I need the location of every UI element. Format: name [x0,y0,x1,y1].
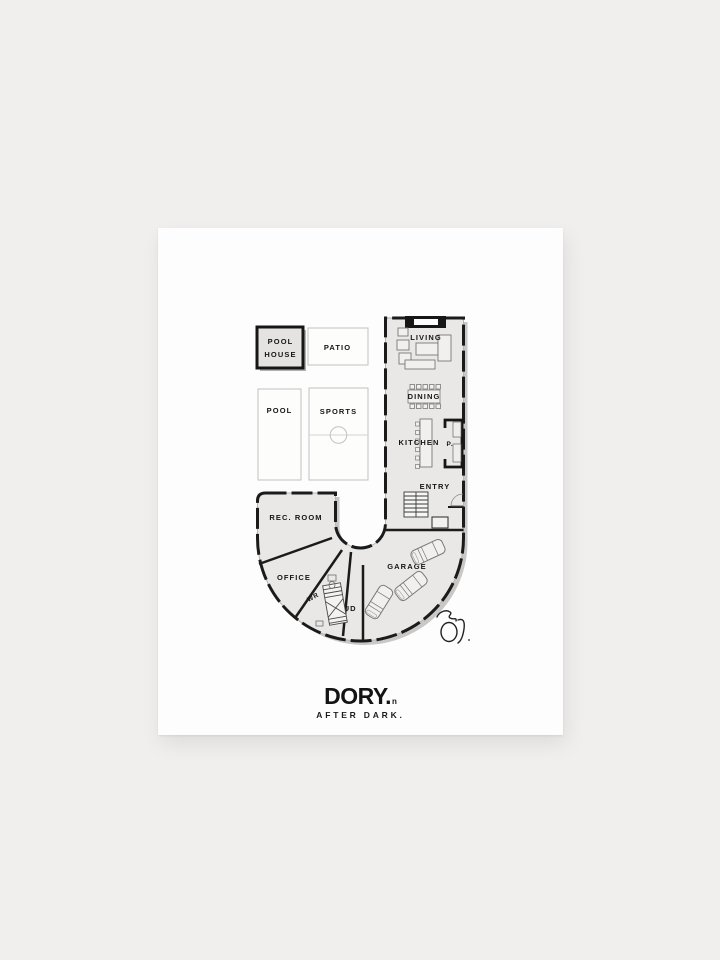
stool-icon [416,456,420,460]
dining-chair-icon [423,385,428,390]
dining-label: DINING [408,392,441,401]
stool-icon [416,465,420,469]
dining-chair-icon [417,385,422,390]
stool-icon [416,448,420,452]
brand-name-text: DORY. [324,683,391,709]
living-label: LIVING [410,333,442,342]
pool-house-label-line2: HOUSE [264,350,296,359]
stool-icon [416,422,420,426]
sports-court [309,388,368,480]
dining-chair-icon [436,385,441,390]
brand-tagline: AFTER DARK. [158,710,563,720]
brand-name: DORY.n [158,685,563,708]
pool [258,389,301,480]
fireplace-inner [414,319,438,325]
armchair-icon [398,328,408,336]
dining-chair-icon [430,404,435,409]
dining-chair-icon [410,404,415,409]
pool-house [257,327,303,368]
dining-chair-icon [430,385,435,390]
pool-label: POOL [267,406,293,415]
coffee-table-icon [416,343,438,355]
brand-logo: DORY.n AFTER DARK. [158,685,563,720]
floor-plan: POOL HOUSE PATIO POOL SPORTS [158,228,563,735]
pantry-shelf-icon [453,422,461,437]
entry-closet [432,517,448,528]
sports-label: SPORTS [320,407,357,416]
outdoor-areas: POOL HOUSE PATIO POOL SPORTS [257,327,368,480]
brand-mark: n [392,697,397,706]
dining-chair-icon [423,404,428,409]
armchair-icon [397,340,409,350]
poster: POOL HOUSE PATIO POOL SPORTS [158,228,563,735]
staircase [404,492,428,517]
dining-chair-icon [417,404,422,409]
dining-chair-icon [436,404,441,409]
entry-label: ENTRY [420,482,451,491]
pantry-shelf-icon [453,444,461,462]
office-label: OFFICE [277,573,311,582]
artist-signature [437,611,470,643]
photo-backdrop: POOL HOUSE PATIO POOL SPORTS [0,0,720,960]
dining-chair-icon [410,385,415,390]
sofa-icon [405,360,435,369]
kitchen-label: KITCHEN [398,438,439,447]
stool-icon [416,431,420,435]
rec-room-label: REC. ROOM [269,513,322,522]
pool-house-label-line1: POOL [268,337,294,346]
pantry-label: P. [447,441,454,448]
patio-label: PATIO [324,343,351,352]
